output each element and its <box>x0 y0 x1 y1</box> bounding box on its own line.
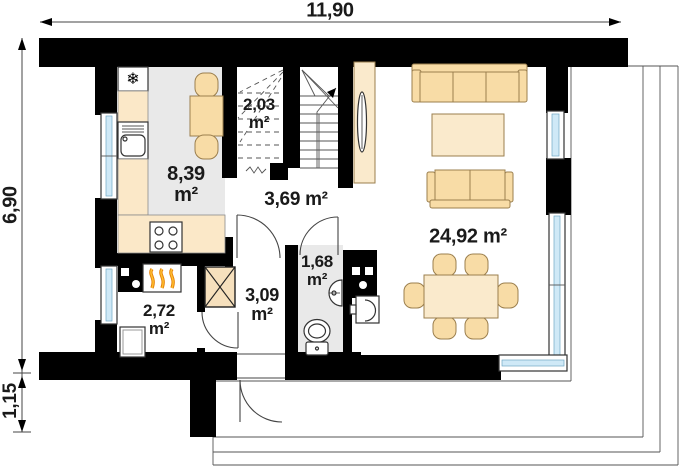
wall-segment <box>361 355 501 380</box>
chair <box>433 317 456 339</box>
kitchen-table <box>190 96 223 136</box>
stair-walkline <box>317 88 336 168</box>
wall-segment <box>95 320 117 352</box>
room-area-utility-room: 2,72 m² <box>143 302 175 338</box>
arrow-right-icon <box>609 18 621 26</box>
dimension-width-label: 11,90 <box>306 0 353 21</box>
room-area-staircase: 2,03 m² <box>243 96 275 132</box>
dining-set <box>404 254 518 339</box>
room-area-hall: 3,69 m² <box>264 190 327 210</box>
snowflake-icon: ❄ <box>126 69 139 89</box>
arrow-left-icon <box>40 18 52 26</box>
window <box>499 355 567 371</box>
room-area-bathroom: 1,68 m² <box>301 253 333 289</box>
kitchen-table-set <box>190 73 223 159</box>
kitchen-sink <box>118 122 148 159</box>
washing-machine <box>120 327 145 357</box>
ventilation-shaft <box>205 267 235 307</box>
wall-segment <box>285 245 298 355</box>
door-entrance <box>237 354 285 422</box>
arrow-down-icon <box>18 420 26 432</box>
kitchen-counter <box>118 91 148 122</box>
room-area-vestibule: 3,09 m² <box>245 286 279 324</box>
window <box>101 113 117 199</box>
chair <box>404 283 425 308</box>
toilet <box>304 320 330 356</box>
room-area-kitchen: 8,39 m² <box>167 164 205 206</box>
living-room-furniture <box>350 62 527 339</box>
kitchen-counter <box>118 159 148 215</box>
floor-plan-drawing <box>0 0 682 474</box>
sofa-large <box>412 64 527 102</box>
sofa-small <box>427 170 513 208</box>
porch-wall <box>190 380 216 437</box>
chair <box>195 135 218 159</box>
door-utility <box>202 312 238 348</box>
arrow-down-icon <box>18 359 26 371</box>
chair <box>195 73 218 97</box>
arrow-up-icon <box>18 38 26 50</box>
stair-direction-arrow <box>327 88 336 98</box>
wall-segment <box>546 158 571 215</box>
chair <box>497 283 518 308</box>
chair <box>465 317 488 339</box>
tv-cabinet <box>354 62 375 183</box>
chair <box>465 254 488 276</box>
wall-segment <box>197 266 205 312</box>
wall-segment <box>222 67 237 178</box>
window <box>549 213 565 361</box>
stair-break-line <box>246 167 266 173</box>
wall-segment <box>39 38 628 67</box>
fireplace-stove <box>350 296 379 323</box>
stove <box>150 222 182 252</box>
window <box>101 266 117 324</box>
wall-segment <box>285 352 361 380</box>
dimension-height-label: 6,90 <box>0 186 21 224</box>
floor-plan: 11,90 6,90 1,15 8,39 m² 2,03 m² 3,69 m² … <box>0 0 682 474</box>
dining-table <box>424 275 498 318</box>
boiler-stove <box>143 264 181 292</box>
wall-segment <box>283 67 300 168</box>
chair <box>433 254 456 276</box>
room-area-living-room: 24,92 m² <box>429 226 507 247</box>
wall-segment <box>546 63 568 113</box>
door-hall <box>237 215 280 258</box>
window <box>547 111 564 159</box>
coffee-table <box>432 114 504 156</box>
wall-segment <box>95 67 117 115</box>
wall-segment <box>197 348 205 356</box>
dimension-porch-label: 1,15 <box>1 383 21 419</box>
wall-segment <box>338 63 353 188</box>
wall-segment <box>270 163 288 180</box>
